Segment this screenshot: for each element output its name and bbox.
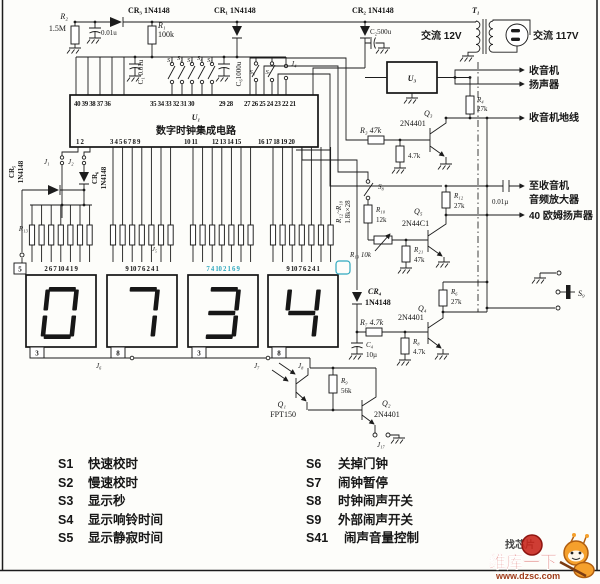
r12-value: 27k [454, 202, 465, 210]
r3-label: R₃ 47k [359, 126, 382, 135]
diode-cr5 [22, 185, 84, 195]
cap-c4 [349, 332, 363, 360]
bank-mult-label: 1.8k×28 [344, 200, 352, 224]
diode-cr3 [110, 17, 123, 27]
cr2-label: CR₂ 1N4148 [352, 6, 394, 15]
legend-s2-id: S2 [58, 476, 73, 490]
diode-cr2 [360, 22, 370, 68]
resistor-r12 [442, 186, 450, 215]
q5-name: Q₅ [414, 207, 423, 216]
output-amp1-label: 至收音机 [529, 179, 569, 192]
c4-name: C₄ [366, 341, 374, 349]
legend-s8-text: 时钟闹声开关 [338, 493, 414, 508]
ic-bottom-pins-3: 10 11 [184, 139, 198, 146]
q3-name: Q₃ [424, 109, 433, 118]
switch-s4 [198, 57, 205, 95]
c2-label: C₂500u [370, 28, 392, 36]
resistor-bank [29, 147, 333, 262]
digit4-bottom-pin: 8 [277, 350, 281, 358]
legend-s6-id: S6 [306, 457, 321, 471]
legend-s3-text: 显示秒 [88, 493, 126, 508]
r7-label: R₇ 4.7k [359, 318, 384, 327]
legend-s7-id: S7 [306, 476, 321, 490]
scanned-schematic-page: R₂ 1.5M 0.01u CR₃ 1N4148 R₁ 100k C₁ 0.01… [0, 0, 600, 584]
switch-s2 [178, 57, 185, 95]
legend-s3-id: S3 [58, 494, 73, 508]
c4-value: 10µ [366, 351, 377, 359]
legend-s4-id: S4 [58, 513, 73, 527]
cap-c6 [216, 57, 230, 82]
photo-transistor-q1 [296, 368, 308, 410]
q1-name: Q₁ [277, 400, 286, 409]
schematic-canvas: R₂ 1.5M 0.01u CR₃ 1N4148 R₁ 100k C₁ 0.01… [0, 0, 600, 584]
s4-label: S₄ [197, 55, 203, 62]
cr4-name: CR₄ [368, 287, 382, 296]
output-radio-label: 收音机 [529, 64, 559, 77]
j4-label: J₄ [291, 60, 297, 68]
digit-display: 2 6 7 10 4 1 9 9 10 7 6 2 4 1 7 4 10 2 1… [26, 261, 350, 370]
radio-speaker-wire-2 [455, 78, 524, 85]
s9-label: S₉ [578, 289, 585, 298]
r21-value: 47k [414, 256, 425, 264]
ic-bottom-pins-5: 16 17 18 19 20 [258, 139, 295, 146]
seven-seg-digit-2 [125, 287, 160, 337]
cap-c2 [365, 37, 390, 54]
digit3-bottom-pin: 3 [197, 350, 201, 358]
resistor-r9 [329, 368, 337, 410]
u3-label: U₃ [408, 74, 417, 83]
light-arrow-2 [279, 363, 295, 374]
digit1-pins: 2 6 7 10 4 1 9 [44, 266, 78, 273]
ic-bottom-pins-4: 12 13 14 15 [212, 139, 242, 146]
j17-label: J₁₇ [377, 441, 386, 449]
ic-top-pins-3: 29 28 [219, 101, 234, 108]
s1-label: S₁ [167, 57, 173, 64]
s2-label: S₂ [177, 55, 183, 62]
digit4-pins: 9 10 7 6 2 4 1 [286, 266, 320, 273]
s5-label: S₅ [207, 57, 213, 64]
output-speaker40-label: 40 欧姆扬声器 [529, 209, 594, 222]
ac-117v-label: 交流 117V [533, 29, 579, 42]
cr3-label: CR₃ 1N4148 [128, 6, 170, 15]
light-arrow-1 [272, 370, 288, 381]
transistor-q2 [362, 368, 376, 433]
power-section: R₂ 1.5M 0.01u CR₃ 1N4148 R₁ 100k C₁ 0.01… [49, 6, 579, 104]
s3-label: S₃ [187, 57, 193, 64]
r19-label: R₁₉ 10k [349, 251, 372, 259]
resistor-r7 [357, 328, 428, 336]
resistor-r21 [398, 240, 412, 274]
legend: S1快速校时 S2慢速校时 S3显示秒 S4显示响铃时间 S5显示静寂时间 S6… [58, 456, 419, 545]
legend-s7-text: 闹钟暂停 [338, 475, 389, 490]
r9-value: 56k [341, 387, 352, 395]
radio-speaker-wire-1 [455, 70, 524, 78]
bank-range-label: R₁₂~R₁₈ [335, 200, 343, 224]
s8-label: S₈ [378, 183, 385, 191]
r1-value: 100k [158, 30, 174, 39]
legend-s9-id: S9 [306, 513, 321, 527]
output-ground-label: 收音机地线 [529, 111, 579, 124]
c6-label: C₆1000u [235, 61, 243, 86]
r8-name: R₈ [412, 338, 420, 346]
legend-s8-id: S8 [306, 494, 321, 508]
ic-title: 数字时钟集成电路 [156, 124, 237, 137]
photo-section: Q₁ FPT150 R₉ 56k Q₂ 2N4401 J₁₇ [270, 363, 405, 449]
coupling-cap-wire [446, 180, 524, 192]
legend-s6-text: 关掉门钟 [338, 456, 388, 471]
output-amp2-label: 音频放大器 [529, 193, 580, 206]
resistor-r6 [439, 282, 487, 312]
cr5-value: 1N4148 [17, 160, 25, 183]
watermark: 找芯片 维库一下 www.dzsc.com [489, 533, 594, 581]
j7-label: J₇ [254, 362, 260, 370]
r10-value: 12k [376, 216, 387, 224]
digit2-pins: 9 10 7 6 2 4 1 [125, 266, 159, 273]
ac-12v-label: 交流 12V [421, 29, 462, 42]
q5-type: 2N44C1 [402, 219, 429, 228]
legend-s5-text: 显示静寂时间 [88, 530, 163, 545]
ic-top-pins-1: 40 39 38 37 36 [74, 101, 111, 108]
resistor-r2 [67, 22, 81, 54]
pins36-40-wires [76, 57, 124, 95]
ic-bottom-pins-1: 1 2 [76, 139, 84, 146]
r2-name: R₂ [59, 12, 68, 21]
diode-cr1 [232, 22, 242, 57]
r10-name: R₁₀ [375, 206, 386, 214]
ic-top-pins-4: 27 26 25 24 23 22 21 [244, 101, 297, 108]
digit-box-2 [107, 275, 177, 347]
resistor-r5 [392, 140, 406, 174]
q2-name: Q₂ [382, 399, 391, 408]
ic-bottom-pins-2: 3 4 5 6 7 8 9 [110, 139, 141, 146]
q3-type: 2N4401 [400, 119, 426, 128]
legend-s2-text: 慢速校时 [88, 475, 139, 490]
q2-type: 2N4401 [374, 410, 400, 419]
diode-cr6 [79, 172, 89, 205]
seven-seg-digit-4 [283, 290, 321, 337]
transistor-q4 [428, 312, 449, 360]
cr6-value: 1N4148 [100, 166, 108, 189]
r6-value: 27k [451, 298, 462, 306]
transistor-q3 [430, 118, 452, 170]
digit1-pin5: 5 [18, 266, 22, 274]
cr1-label: CR₁ 1N4148 [214, 6, 256, 15]
switch-s8 [364, 179, 373, 205]
c5-value: 0.01µ [492, 198, 508, 206]
s7-label: S₇ [265, 69, 271, 76]
seven-seg-digit-3 [206, 287, 242, 339]
digit3-pins: 7 4 10 2 1 6 9 [206, 266, 240, 273]
j8-label: J₈ [298, 362, 304, 370]
legend-s41-id: S41 [306, 531, 328, 545]
transistor-q5 [428, 215, 450, 268]
amp-section: R₃ 47k Q₃ 2N4401 R₄ 27k 收音机地线 4.7k S₈ R₁… [349, 78, 594, 366]
j5-label: J₅ [152, 246, 157, 253]
r21-name: R₂₁ [413, 246, 423, 254]
watermark-stamp-box [336, 261, 350, 274]
legend-s41-text: 闹声音量控制 [344, 530, 419, 545]
left-jumper-area: J₁ J₂ CR₅ 1N4148 CR₆ 1N4148 5 R₁₃ [8, 147, 108, 274]
j2-label: J₂ [68, 158, 74, 166]
jumper-j4 [284, 57, 287, 95]
r8-value: 4.7k [413, 348, 426, 356]
regulator-u3 [365, 62, 470, 104]
ac-plug-icon [506, 24, 528, 46]
r6-name: R₆ [450, 288, 458, 296]
cap-001u [87, 22, 101, 44]
ic-u1: 40 39 38 37 36 35 34 33 32 31 30 29 28 2… [70, 95, 318, 147]
r4-name: R₄ [476, 96, 484, 104]
resistor-r1 [148, 22, 156, 57]
watermark-url: www.dzsc.com [495, 571, 560, 581]
r12-name: R₁₂ [453, 192, 464, 200]
switch-s6-top [252, 57, 259, 95]
q4-name: Q₄ [418, 304, 427, 313]
c1-label: C₁ 0.01u [137, 59, 145, 84]
t1-label: T₁ [472, 6, 480, 15]
output-speaker-label: 扬声器 [529, 78, 560, 91]
legend-s5-id: S5 [58, 531, 73, 545]
ic-name: U₁ [192, 113, 201, 122]
r2-value: 1.5M [49, 24, 66, 33]
switch-s7-top [268, 57, 275, 95]
ic-top-pins-2: 35 34 33 32 31 30 [150, 101, 195, 108]
cr6-name: CR₆ [91, 172, 99, 184]
r13-label: R₁₃ [18, 225, 29, 233]
legend-s4-text: 显示响铃时间 [88, 512, 163, 527]
j1-label: J₁ [44, 158, 50, 166]
switch-row-s1-s5: S₁ S₂ S₃ S₄ S₅ [167, 55, 215, 95]
q4-type: 2N4401 [398, 313, 424, 322]
legend-s9-text: 外部闹声开关 [337, 512, 414, 527]
legend-s1-id: S1 [58, 457, 73, 471]
seven-seg-digit-1 [40, 287, 79, 339]
r4-value: 27k [477, 105, 488, 113]
cap-001u-value: 0.01u [101, 29, 117, 37]
r9-name: R₉ [340, 377, 348, 385]
watermark-brand: 维库一下 [489, 552, 557, 572]
cr5-name: CR₅ [8, 166, 16, 178]
q1-type: FPT150 [270, 410, 296, 419]
r1-name: R₁ [157, 21, 166, 30]
digit1-bottom-pin: 3 [35, 350, 39, 358]
external-jack-s9 [487, 271, 575, 310]
resistor-r8 [397, 332, 411, 366]
legend-s1-text: 快速校时 [88, 456, 139, 471]
seven-segment-digits [40, 287, 321, 339]
resistor-r10 [364, 205, 372, 240]
digit2-bottom-pin: 8 [116, 350, 120, 358]
cr4-value: 1N4148 [365, 298, 391, 307]
j6-label: J₆ [96, 362, 102, 370]
r5-value: 4.7k [408, 152, 421, 160]
